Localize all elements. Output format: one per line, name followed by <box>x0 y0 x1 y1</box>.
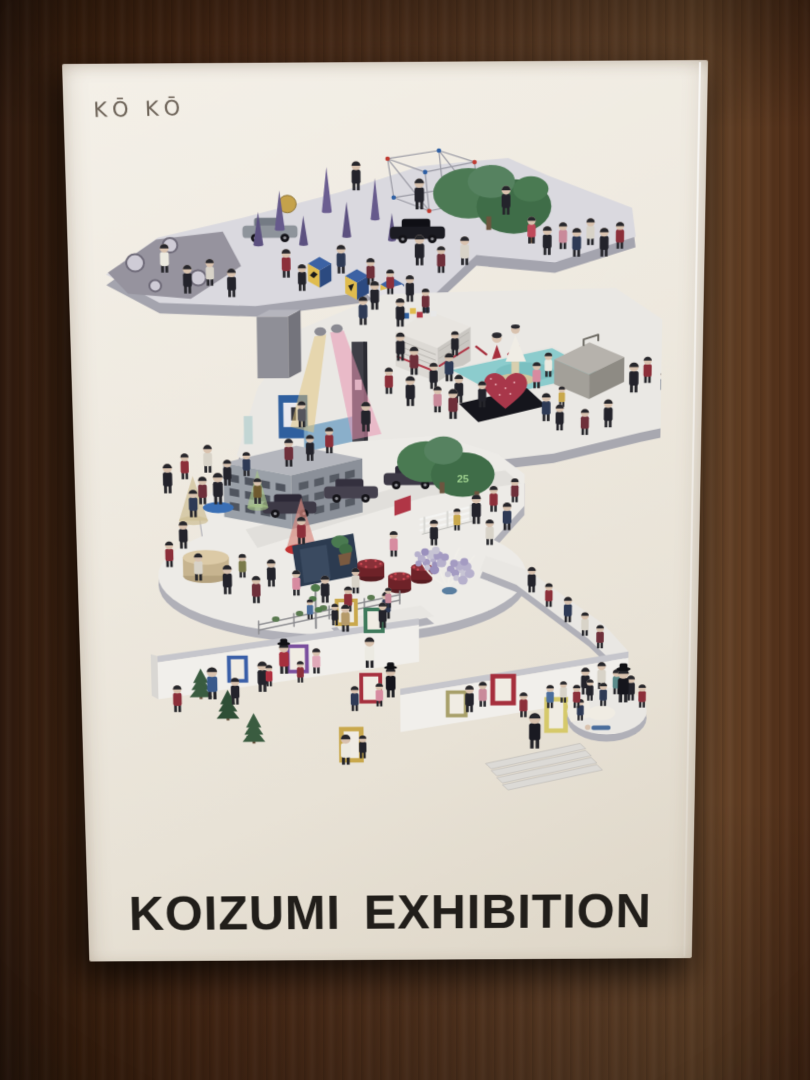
visitor-figure <box>661 371 665 397</box>
cube-node <box>427 209 432 213</box>
visitor-figure <box>384 662 397 697</box>
picture-frame-blue <box>227 656 248 683</box>
exhibition-box-cover: KŌ KŌ 25 KOIZUMI EXHIBITION <box>62 60 708 961</box>
teal-wall <box>244 416 253 444</box>
spotlight-lamp <box>314 327 326 336</box>
shop-roof-block <box>430 311 436 317</box>
visitor-figure <box>173 685 182 712</box>
visitor-figure <box>207 667 218 699</box>
heart-dot <box>505 387 507 389</box>
heart-dot <box>490 378 492 380</box>
visitor-figure <box>519 692 527 717</box>
spotlight-lamp <box>331 324 343 333</box>
svg-text:25: 25 <box>457 474 469 485</box>
cube-node <box>472 160 477 165</box>
box-title: KOIZUMI EXHIBITION <box>108 882 672 942</box>
lying-figure <box>592 725 611 730</box>
visitor-figure <box>198 477 207 505</box>
garland <box>296 611 304 617</box>
visitor-figure <box>297 661 304 682</box>
tree-number-label: 25 <box>457 474 469 485</box>
picture-frame-olive <box>446 690 468 717</box>
visitor-figure <box>163 464 173 493</box>
red-planter <box>357 559 384 582</box>
heart-dot <box>495 384 497 386</box>
purple-cone <box>321 167 331 213</box>
ivy-leaves <box>311 584 321 591</box>
heart-dot <box>513 382 515 384</box>
shop-roof-block <box>417 312 423 318</box>
pine-tree <box>242 713 265 744</box>
koko-logo: KŌ KŌ <box>93 96 186 122</box>
shop-roof-block <box>410 308 416 314</box>
cube-node <box>423 170 428 175</box>
ivy-leaves <box>315 607 323 613</box>
record-disc <box>126 254 144 271</box>
cube-node <box>437 148 442 153</box>
visitor-figure <box>179 521 188 548</box>
isometric-exhibition-illustration: 25 <box>90 145 664 826</box>
visitor-figure <box>351 161 360 190</box>
red-planter <box>388 572 411 593</box>
garland <box>367 595 375 601</box>
tree-trunk <box>486 216 491 230</box>
visitor-figure <box>529 713 541 748</box>
visitor-figure <box>231 678 240 705</box>
gray-cube <box>288 310 302 378</box>
visitor-figure <box>351 686 359 711</box>
heart-dot <box>499 394 501 396</box>
visitor-figure <box>180 453 189 479</box>
visitor-figure <box>203 445 212 473</box>
tree <box>424 436 463 464</box>
heart-dot <box>509 393 511 395</box>
gray-cube <box>257 317 289 379</box>
cube-node <box>391 195 396 199</box>
picture-frame-red <box>490 674 516 706</box>
gallery-wall-endcap <box>151 654 159 699</box>
record-disc <box>190 270 206 285</box>
cube-node <box>385 156 390 161</box>
tree-trunk <box>440 482 445 493</box>
record-disc <box>149 280 161 292</box>
